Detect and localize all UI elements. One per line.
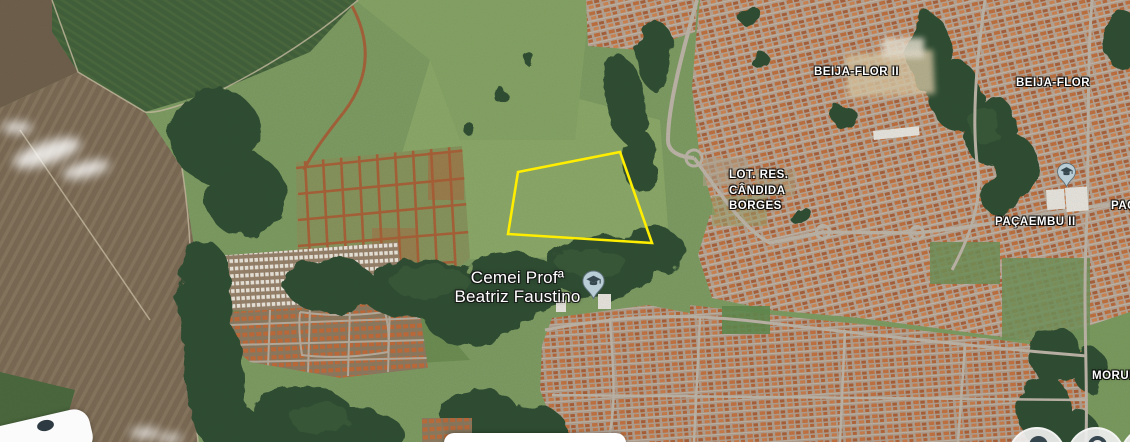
ring-icon xyxy=(1088,436,1107,442)
person-dot-icon xyxy=(1029,436,1048,442)
terrain-layers xyxy=(0,0,1130,442)
bottom-center-partial-card[interactable] xyxy=(444,433,626,442)
satellite-map-canvas[interactable] xyxy=(0,0,1130,442)
school-pin-pacaembu[interactable] xyxy=(1056,162,1077,189)
school-pin-cemei[interactable] xyxy=(581,270,606,301)
satellite-map-screen: BEIJA-FLOR II BEIJA-FLOR LOT. RES. CÂNDI… xyxy=(0,0,1130,442)
